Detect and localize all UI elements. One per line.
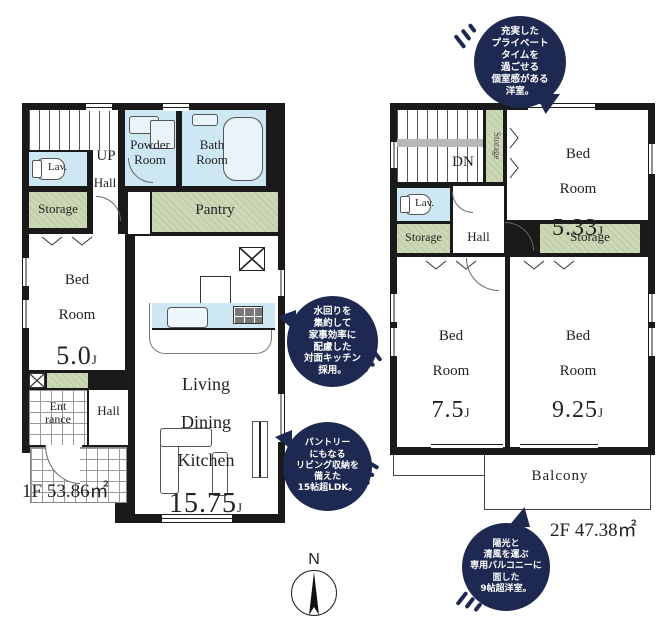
fridge-icon xyxy=(200,276,231,304)
storage-left-label: Storage xyxy=(397,231,450,244)
window xyxy=(391,328,397,356)
floor1-staircase xyxy=(29,110,118,150)
kitchen-sink-icon xyxy=(167,307,208,328)
floorplan-canvas: UP Hall Lav. Storage Powder Room Bath Ro… xyxy=(0,0,666,637)
bedroom75-line1: Bed xyxy=(407,328,495,345)
bubble-ldk: パントリー にもなる リビング収納を 備えた 15帖超LDK。 xyxy=(283,422,372,511)
bedroom925-size: 9.25J xyxy=(530,397,626,424)
dn-label: DN xyxy=(444,154,482,171)
closet-chevrons xyxy=(40,236,102,247)
powder-room-label: Powder Room xyxy=(120,138,180,167)
bedroom533-line1: Bed xyxy=(530,146,626,163)
bedroom1f-line2: Room xyxy=(34,307,120,324)
floor1-area-label: 1F 53.86㎡ xyxy=(22,481,142,502)
toilet-tank-icon xyxy=(400,196,410,213)
bedroom1f-label: Bed Room 5.0J xyxy=(34,254,120,388)
lav-label: Lav. xyxy=(48,161,84,173)
window xyxy=(163,104,189,111)
bedroom533-line2: Room xyxy=(530,181,626,198)
toilet-tank-icon xyxy=(32,160,42,178)
ldk-label: Living Dining Kitchen 15.75J xyxy=(150,356,262,537)
storage-label: Storage xyxy=(29,202,87,217)
window xyxy=(649,294,655,322)
balcony-left xyxy=(393,455,486,476)
bedroom1f-line1: Bed xyxy=(34,272,120,289)
bubble-balcony-room: 陽光と 清風を運ぶ 専用バルコニーに 面した 9帖超洋室。 xyxy=(462,523,550,611)
stove-icon xyxy=(233,306,263,324)
window xyxy=(278,270,284,296)
storage-stair-label: Storage xyxy=(487,112,502,180)
pantry-label: Pantry xyxy=(175,202,255,219)
ldk-size: 15.75J xyxy=(150,488,262,519)
hall-upper-label: Hall xyxy=(88,176,122,191)
closet-chevrons-vertical xyxy=(509,126,520,188)
floor1-passage xyxy=(128,192,150,234)
refrigerator-slot xyxy=(239,247,265,271)
window xyxy=(86,104,112,111)
bedroom925-line1: Bed xyxy=(530,328,626,345)
bedroom925-label: Bed Room 9.25J xyxy=(530,310,626,442)
up-label: UP xyxy=(90,148,122,165)
window xyxy=(528,104,595,111)
bedroom533-size: 5.33J xyxy=(530,215,626,242)
window xyxy=(391,294,397,322)
hall-lower-label: Hall xyxy=(89,404,128,419)
balcony-label: Balcony xyxy=(520,468,600,485)
bubble-kitchen: 水回りを 集約して 家事効率に 配慮した 対面キッチン 採用。 xyxy=(287,296,378,387)
entrance-label: Ent rance xyxy=(30,400,86,427)
ldk-line1: Living xyxy=(150,374,262,394)
window xyxy=(23,300,29,328)
lav2-label: Lav. xyxy=(415,197,451,209)
window xyxy=(23,258,29,286)
ldk-line2: Dining xyxy=(150,412,262,432)
floor2-area-label: 2F 47.38㎡ xyxy=(550,520,660,541)
compass-needle-icon xyxy=(307,572,321,616)
window xyxy=(391,142,397,168)
bath-room-label: Bath Room xyxy=(182,138,242,167)
window xyxy=(649,144,655,174)
bedroom533-label: Bed Room 5.33J xyxy=(530,128,626,260)
bedroom925-line2: Room xyxy=(530,363,626,380)
bath-sink-icon xyxy=(192,114,218,126)
ldk-line3: Kitchen xyxy=(150,450,262,470)
compass-north-label: N xyxy=(300,551,328,569)
bedroom1f-size: 5.0J xyxy=(34,341,120,370)
bubble-private-room: 充実した プライベート タイムを 過ごせる 個室感がある 洋室。 xyxy=(474,16,566,108)
window xyxy=(649,328,655,356)
bedroom75-size: 7.5J xyxy=(407,397,495,424)
closet-chevrons xyxy=(522,260,584,271)
x-mark-icon xyxy=(240,248,264,270)
stair-landing xyxy=(397,139,483,147)
bedroom75-line2: Room xyxy=(407,363,495,380)
bedroom75-label: Bed Room 7.5J xyxy=(407,310,495,442)
hall2-label: Hall xyxy=(453,230,504,245)
